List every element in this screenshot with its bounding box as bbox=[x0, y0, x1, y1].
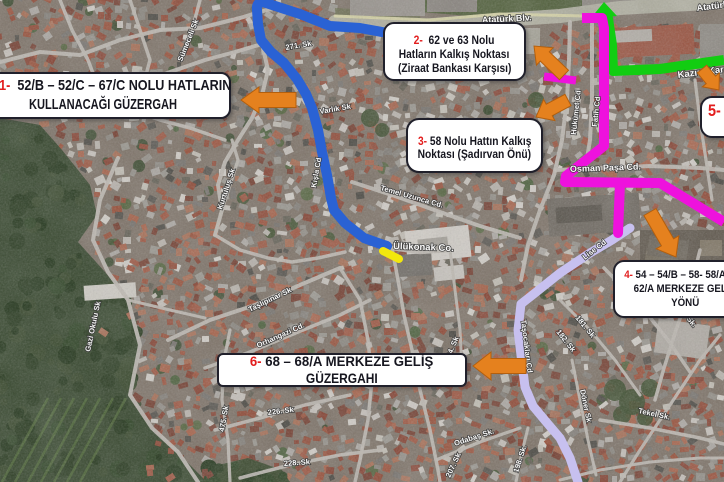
svg-text:Ülükonak Co.: Ülükonak Co. bbox=[393, 241, 454, 254]
svg-text:228. Sk: 228. Sk bbox=[284, 457, 312, 468]
